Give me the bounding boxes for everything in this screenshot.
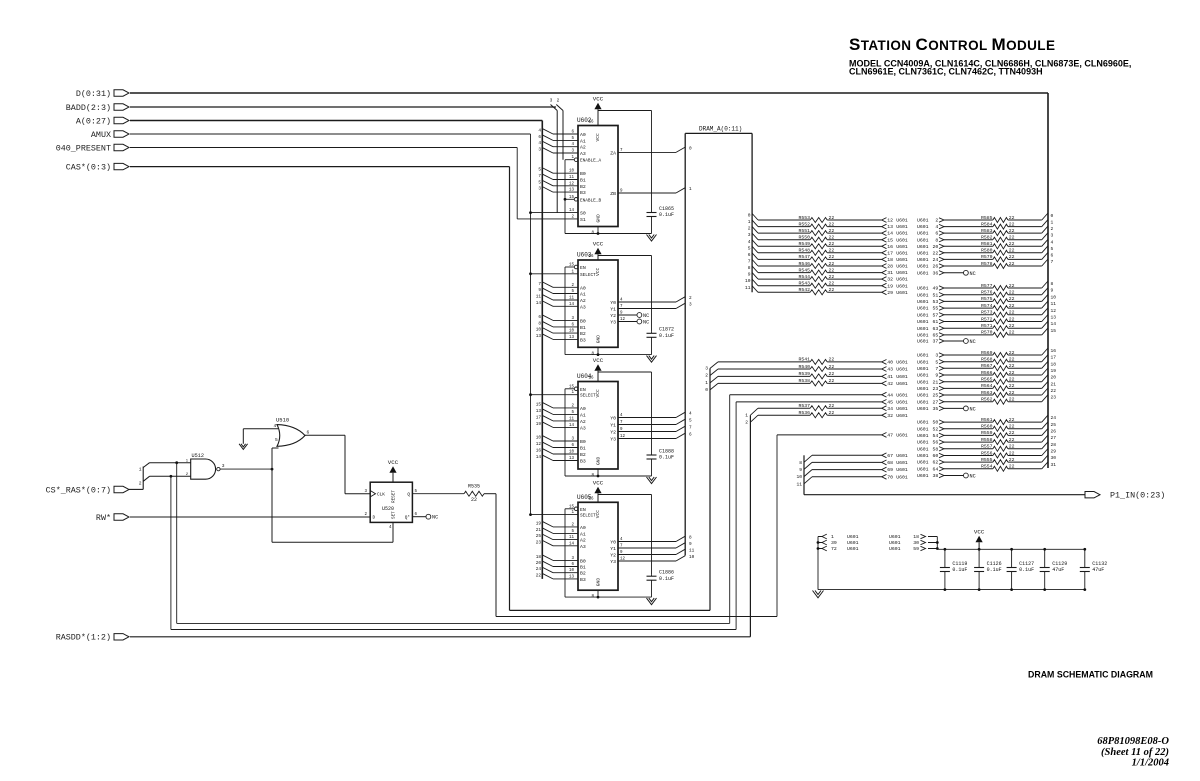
- svg-text:GND: GND: [596, 335, 602, 344]
- svg-text:U601: U601: [896, 257, 908, 263]
- svg-text:Y2: Y2: [610, 430, 616, 436]
- svg-text:16: 16: [588, 497, 594, 501]
- svg-text:C1886: C1886: [659, 570, 674, 576]
- svg-text:31: 31: [887, 270, 893, 276]
- svg-text:R562: R562: [981, 397, 993, 403]
- svg-text:16: 16: [536, 449, 542, 454]
- svg-text:22: 22: [1009, 241, 1015, 247]
- svg-text:12: 12: [1051, 308, 1057, 314]
- svg-text:SELECT: SELECT: [580, 514, 596, 519]
- svg-text:9: 9: [748, 272, 751, 278]
- svg-text:29: 29: [887, 290, 893, 296]
- svg-text:VCC: VCC: [593, 241, 604, 248]
- svg-text:R542: R542: [798, 287, 810, 293]
- svg-text:22: 22: [1009, 437, 1015, 443]
- svg-text:CAS*(0:3): CAS*(0:3): [66, 162, 111, 172]
- svg-text:R571: R571: [981, 323, 993, 329]
- svg-text:4: 4: [538, 129, 541, 134]
- svg-text:U601: U601: [917, 231, 929, 237]
- svg-text:U601: U601: [896, 218, 908, 224]
- svg-text:22: 22: [829, 364, 835, 370]
- svg-text:22: 22: [829, 248, 835, 254]
- svg-text:9: 9: [538, 288, 541, 293]
- svg-text:37: 37: [933, 339, 939, 345]
- svg-text:Y1: Y1: [610, 423, 616, 429]
- svg-text:U601: U601: [917, 299, 929, 305]
- svg-text:45: 45: [887, 400, 893, 406]
- svg-text:22: 22: [1009, 390, 1015, 396]
- svg-text:U601: U601: [917, 359, 929, 365]
- svg-text:55: 55: [933, 306, 939, 312]
- svg-text:20: 20: [1051, 375, 1057, 381]
- svg-text:0: 0: [705, 387, 708, 393]
- svg-text:34: 34: [887, 406, 893, 412]
- svg-text:9: 9: [1051, 288, 1054, 294]
- svg-text:DRAM_A(0:11): DRAM_A(0:11): [699, 126, 742, 133]
- svg-text:11: 11: [745, 285, 751, 291]
- svg-text:29: 29: [1051, 449, 1057, 455]
- svg-text:U601: U601: [917, 399, 929, 405]
- svg-text:22: 22: [829, 241, 835, 247]
- svg-text:51: 51: [933, 292, 939, 298]
- svg-text:9: 9: [799, 467, 802, 473]
- svg-text:Y3: Y3: [610, 559, 616, 565]
- svg-text:14: 14: [536, 455, 542, 460]
- svg-text:A1: A1: [580, 292, 586, 298]
- svg-text:68P81098E08-O: 68P81098E08-O: [1097, 736, 1169, 747]
- svg-text:U512: U512: [192, 453, 204, 459]
- svg-text:11: 11: [689, 549, 695, 554]
- svg-text:ENABLE_B: ENABLE_B: [580, 198, 601, 203]
- svg-text:30: 30: [1051, 455, 1057, 461]
- svg-text:A1: A1: [580, 531, 586, 537]
- svg-text:RESET: RESET: [392, 490, 397, 503]
- svg-text:U601: U601: [896, 367, 908, 373]
- svg-text:U601: U601: [917, 270, 929, 276]
- svg-text:1: 1: [831, 534, 834, 540]
- svg-text:U601: U601: [917, 440, 929, 446]
- svg-text:7: 7: [748, 259, 751, 265]
- svg-text:0.1uF: 0.1uF: [1019, 567, 1034, 573]
- svg-text:R536: R536: [798, 410, 810, 416]
- svg-text:R539: R539: [798, 371, 810, 377]
- svg-text:NC: NC: [970, 406, 976, 412]
- svg-text:U601: U601: [896, 453, 908, 459]
- svg-text:A2: A2: [580, 145, 586, 151]
- svg-text:R547: R547: [798, 254, 810, 260]
- svg-text:22: 22: [829, 403, 835, 409]
- svg-text:R543: R543: [798, 281, 810, 287]
- svg-text:2: 2: [935, 218, 938, 224]
- svg-text:22: 22: [829, 221, 835, 227]
- svg-text:R550: R550: [798, 235, 810, 241]
- svg-text:22: 22: [1009, 350, 1015, 356]
- svg-text:A1: A1: [580, 412, 586, 418]
- svg-text:R546: R546: [798, 261, 810, 267]
- svg-text:1: 1: [1051, 220, 1054, 226]
- svg-text:A3: A3: [580, 151, 586, 157]
- svg-text:R573: R573: [981, 310, 993, 316]
- svg-text:31: 31: [1051, 462, 1057, 468]
- svg-text:21: 21: [1051, 381, 1057, 387]
- svg-text:59: 59: [913, 546, 919, 552]
- svg-text:U601: U601: [917, 386, 929, 392]
- svg-text:18: 18: [913, 534, 919, 540]
- svg-text:24: 24: [536, 567, 542, 572]
- svg-text:10: 10: [1051, 294, 1057, 300]
- svg-text:25: 25: [933, 393, 939, 399]
- svg-text:U601: U601: [917, 379, 929, 385]
- svg-text:26: 26: [933, 264, 939, 270]
- svg-text:U601: U601: [917, 420, 929, 426]
- svg-text:22: 22: [471, 497, 477, 503]
- svg-text:63: 63: [933, 326, 939, 332]
- svg-text:57: 57: [933, 312, 939, 318]
- svg-text:5: 5: [538, 180, 541, 185]
- svg-text:22: 22: [829, 267, 835, 273]
- svg-text:(Sheet 11 of 22): (Sheet 11 of 22): [1101, 747, 1169, 758]
- svg-text:0: 0: [748, 213, 751, 219]
- svg-text:B0: B0: [580, 439, 586, 445]
- svg-text:22: 22: [829, 357, 835, 363]
- svg-text:22: 22: [1009, 363, 1015, 369]
- svg-text:30: 30: [913, 540, 919, 546]
- svg-text:B0: B0: [580, 558, 586, 564]
- svg-text:B2: B2: [580, 571, 586, 577]
- svg-text:U601: U601: [917, 250, 929, 256]
- svg-text:Y0: Y0: [610, 300, 616, 306]
- svg-text:22: 22: [829, 215, 835, 221]
- svg-text:R575: R575: [981, 296, 993, 302]
- svg-text:EN: EN: [580, 265, 586, 271]
- svg-text:R579: R579: [981, 254, 993, 260]
- svg-text:2: 2: [745, 420, 748, 426]
- svg-text:3: 3: [935, 353, 938, 359]
- svg-text:5: 5: [689, 419, 692, 424]
- svg-text:16: 16: [887, 244, 893, 250]
- svg-text:R560: R560: [981, 424, 993, 430]
- svg-text:6: 6: [1051, 252, 1054, 258]
- svg-text:U601: U601: [917, 224, 929, 230]
- svg-text:17: 17: [1051, 355, 1057, 361]
- svg-text:U601: U601: [896, 277, 908, 283]
- svg-text:22: 22: [1009, 235, 1015, 241]
- svg-text:D(0:31): D(0:31): [76, 89, 111, 99]
- svg-text:22: 22: [1009, 310, 1015, 316]
- svg-text:19: 19: [536, 521, 542, 526]
- svg-text:Q: Q: [407, 493, 410, 498]
- svg-text:STATION CONTROL MODULE: STATION CONTROL MODULE: [849, 35, 1055, 54]
- svg-text:22: 22: [829, 274, 835, 280]
- svg-text:14: 14: [1051, 321, 1057, 327]
- svg-text:A3: A3: [580, 304, 586, 310]
- svg-text:R583: R583: [981, 228, 993, 234]
- svg-text:C1872: C1872: [659, 327, 674, 333]
- svg-text:50: 50: [933, 420, 939, 426]
- svg-text:Y0: Y0: [610, 416, 616, 422]
- svg-text:53: 53: [933, 299, 939, 305]
- svg-text:38: 38: [933, 473, 939, 479]
- svg-text:22: 22: [829, 261, 835, 267]
- svg-text:21: 21: [933, 379, 939, 385]
- svg-text:RASDD*(1:2): RASDD*(1:2): [56, 633, 111, 643]
- svg-text:20: 20: [536, 561, 542, 566]
- svg-text:R563: R563: [981, 390, 993, 396]
- svg-text:17: 17: [536, 415, 542, 420]
- svg-text:5: 5: [275, 437, 278, 443]
- svg-text:62: 62: [933, 460, 939, 466]
- svg-text:U601: U601: [896, 264, 908, 270]
- svg-text:R564: R564: [981, 383, 993, 389]
- svg-text:CLN6961E, CLN7361C, CLN7462C,: CLN6961E, CLN7361C, CLN7462C, TTN4093H: [849, 67, 1043, 77]
- svg-text:A0: A0: [580, 132, 586, 138]
- svg-text:19: 19: [536, 422, 542, 427]
- svg-text:12: 12: [887, 218, 893, 224]
- svg-text:U601: U601: [917, 286, 929, 292]
- svg-text:R553: R553: [798, 215, 810, 221]
- svg-text:21: 21: [536, 528, 542, 533]
- svg-text:Y3: Y3: [610, 437, 616, 443]
- svg-text:2: 2: [557, 98, 560, 104]
- svg-text:13: 13: [536, 409, 542, 414]
- svg-text:22: 22: [1009, 430, 1015, 436]
- svg-text:A1: A1: [580, 138, 586, 144]
- svg-text:22: 22: [1009, 424, 1015, 430]
- svg-text:U601: U601: [896, 381, 908, 387]
- svg-text:3: 3: [550, 98, 553, 104]
- svg-text:U601: U601: [917, 244, 929, 250]
- svg-text:4: 4: [538, 141, 541, 146]
- svg-text:16: 16: [1051, 348, 1057, 354]
- svg-text:U601: U601: [847, 546, 859, 552]
- svg-text:18: 18: [887, 257, 893, 263]
- svg-text:6: 6: [307, 430, 310, 436]
- svg-text:R567: R567: [981, 363, 993, 369]
- svg-text:35: 35: [933, 406, 939, 412]
- svg-text:32: 32: [887, 277, 893, 283]
- svg-text:72: 72: [831, 546, 837, 552]
- svg-text:GND: GND: [596, 456, 602, 465]
- svg-text:U601: U601: [896, 374, 908, 380]
- svg-text:B1: B1: [580, 178, 586, 184]
- svg-text:U601: U601: [889, 540, 901, 546]
- svg-text:1: 1: [139, 467, 142, 473]
- svg-text:U601: U601: [917, 426, 929, 432]
- svg-text:U601: U601: [896, 244, 908, 250]
- svg-text:B0: B0: [580, 318, 586, 324]
- svg-text:5: 5: [748, 245, 751, 251]
- svg-text:B3: B3: [580, 459, 586, 465]
- svg-text:U601: U601: [917, 373, 929, 379]
- svg-text:16: 16: [588, 377, 594, 381]
- svg-text:18: 18: [536, 555, 542, 560]
- svg-text:R551: R551: [798, 228, 810, 234]
- svg-text:C1129: C1129: [1052, 561, 1067, 567]
- svg-text:VCC: VCC: [593, 357, 604, 364]
- svg-text:A2: A2: [580, 538, 586, 544]
- svg-text:VCC: VCC: [593, 96, 604, 103]
- svg-text:Y2: Y2: [610, 313, 616, 319]
- svg-text:22: 22: [829, 281, 835, 287]
- svg-text:22: 22: [1009, 383, 1015, 389]
- svg-text:VCC: VCC: [595, 267, 601, 276]
- svg-text:56: 56: [933, 440, 939, 446]
- svg-text:C1126: C1126: [987, 561, 1002, 567]
- svg-text:U601: U601: [896, 224, 908, 230]
- svg-text:18: 18: [1051, 361, 1057, 367]
- svg-text:U601: U601: [896, 231, 908, 237]
- svg-text:RW*: RW*: [96, 513, 111, 523]
- svg-text:R549: R549: [798, 241, 810, 247]
- svg-text:U601: U601: [847, 540, 859, 546]
- svg-text:VCC: VCC: [974, 529, 985, 536]
- svg-text:22: 22: [829, 235, 835, 241]
- svg-text:3: 3: [689, 303, 692, 308]
- svg-text:R537: R537: [798, 403, 810, 409]
- svg-text:R558: R558: [981, 437, 993, 443]
- svg-text:U601: U601: [896, 290, 908, 296]
- svg-text:22: 22: [1009, 303, 1015, 309]
- svg-text:47: 47: [887, 433, 893, 439]
- svg-text:13: 13: [1051, 315, 1057, 321]
- svg-text:Y2: Y2: [610, 553, 616, 559]
- svg-text:26: 26: [1051, 428, 1057, 434]
- svg-text:23: 23: [1051, 395, 1057, 401]
- svg-text:Y0: Y0: [610, 540, 616, 546]
- svg-text:C1865: C1865: [659, 206, 674, 212]
- svg-text:1: 1: [689, 187, 692, 192]
- svg-text:EN: EN: [580, 387, 586, 393]
- svg-text:6: 6: [689, 433, 692, 438]
- svg-text:3: 3: [1051, 233, 1054, 239]
- svg-text:22: 22: [829, 410, 835, 416]
- svg-text:10: 10: [536, 436, 542, 441]
- svg-text:22: 22: [829, 287, 835, 293]
- svg-text:R559: R559: [981, 430, 993, 436]
- svg-text:R544: R544: [798, 274, 810, 280]
- svg-text:15: 15: [1051, 328, 1057, 334]
- svg-text:69: 69: [887, 467, 893, 473]
- svg-text:40: 40: [887, 360, 893, 366]
- svg-text:U601: U601: [896, 250, 908, 256]
- svg-text:9: 9: [935, 373, 938, 379]
- svg-text:70: 70: [887, 474, 893, 480]
- svg-text:60: 60: [933, 453, 939, 459]
- svg-text:VCC: VCC: [595, 389, 601, 398]
- svg-text:7: 7: [538, 174, 541, 179]
- svg-text:10: 10: [536, 328, 542, 333]
- svg-text:16: 16: [588, 121, 594, 125]
- svg-text:0: 0: [1051, 213, 1054, 219]
- svg-text:A0: A0: [580, 406, 586, 412]
- svg-text:U601: U601: [917, 393, 929, 399]
- svg-text:22: 22: [1009, 417, 1015, 423]
- svg-text:1: 1: [705, 380, 708, 386]
- svg-text:C1132: C1132: [1092, 561, 1107, 567]
- svg-text:5: 5: [538, 168, 541, 173]
- svg-text:2: 2: [748, 226, 751, 232]
- svg-text:U520: U520: [382, 506, 394, 512]
- svg-text:17: 17: [887, 250, 893, 256]
- svg-text:22: 22: [829, 378, 835, 384]
- svg-text:3: 3: [538, 148, 541, 153]
- svg-text:22: 22: [1009, 450, 1015, 456]
- svg-text:U601: U601: [896, 433, 908, 439]
- svg-text:3: 3: [538, 187, 541, 192]
- svg-text:U601: U601: [917, 460, 929, 466]
- svg-text:0: 0: [689, 146, 692, 151]
- svg-text:Q*: Q*: [405, 516, 411, 521]
- svg-text:GND: GND: [596, 578, 602, 587]
- svg-text:8: 8: [799, 460, 802, 466]
- svg-text:R568: R568: [981, 357, 993, 363]
- svg-text:4: 4: [1051, 239, 1054, 245]
- svg-text:0.1uF: 0.1uF: [952, 567, 967, 573]
- svg-text:040_PRESENT: 040_PRESENT: [56, 143, 111, 153]
- svg-text:4: 4: [935, 224, 938, 230]
- svg-text:VCC: VCC: [593, 480, 604, 487]
- svg-text:B1: B1: [580, 565, 586, 571]
- svg-text:R580: R580: [981, 248, 993, 254]
- svg-text:23: 23: [933, 386, 939, 392]
- svg-text:68: 68: [887, 460, 893, 466]
- svg-text:22: 22: [933, 250, 939, 256]
- svg-text:U601: U601: [896, 270, 908, 276]
- svg-text:22: 22: [1009, 330, 1015, 336]
- svg-text:B2: B2: [580, 184, 586, 190]
- svg-text:U601: U601: [889, 534, 901, 540]
- svg-text:U601: U601: [917, 306, 929, 312]
- svg-text:U601: U601: [896, 283, 908, 289]
- svg-text:0.1uF: 0.1uF: [659, 333, 674, 339]
- svg-text:B1: B1: [580, 325, 586, 331]
- svg-text:22: 22: [1009, 283, 1015, 289]
- svg-text:22: 22: [1009, 464, 1015, 470]
- svg-text:15: 15: [887, 237, 893, 243]
- svg-text:7: 7: [689, 426, 692, 431]
- svg-text:22: 22: [1009, 397, 1015, 403]
- svg-text:A2: A2: [580, 298, 586, 304]
- svg-text:U601: U601: [917, 433, 929, 439]
- svg-text:U601: U601: [847, 534, 859, 540]
- svg-text:B2: B2: [580, 331, 586, 337]
- svg-text:DRAM SCHEMATIC DIAGRAM: DRAM SCHEMATIC DIAGRAM: [1028, 670, 1153, 680]
- svg-text:22: 22: [1009, 370, 1015, 376]
- svg-text:5: 5: [1051, 246, 1054, 252]
- svg-text:67: 67: [887, 453, 893, 459]
- svg-text:A(0:27): A(0:27): [76, 116, 111, 126]
- svg-text:22: 22: [829, 254, 835, 260]
- svg-text:41: 41: [887, 374, 893, 380]
- svg-text:R552: R552: [798, 221, 810, 227]
- svg-text:U601: U601: [917, 292, 929, 298]
- svg-text:C1127: C1127: [1019, 561, 1034, 567]
- svg-text:U601: U601: [896, 413, 908, 419]
- svg-text:R561: R561: [981, 417, 993, 423]
- svg-text:64: 64: [933, 466, 939, 472]
- svg-text:A0: A0: [580, 285, 586, 291]
- svg-text:U601: U601: [917, 353, 929, 359]
- svg-text:22: 22: [1009, 221, 1015, 227]
- svg-text:27: 27: [933, 399, 939, 405]
- svg-text:61: 61: [933, 319, 939, 325]
- svg-text:SELECT: SELECT: [580, 394, 596, 399]
- svg-text:22: 22: [1051, 388, 1057, 394]
- svg-text:A3: A3: [580, 544, 586, 550]
- svg-text:25: 25: [1051, 422, 1057, 428]
- svg-text:R540: R540: [798, 364, 810, 370]
- svg-text:R548: R548: [798, 248, 810, 254]
